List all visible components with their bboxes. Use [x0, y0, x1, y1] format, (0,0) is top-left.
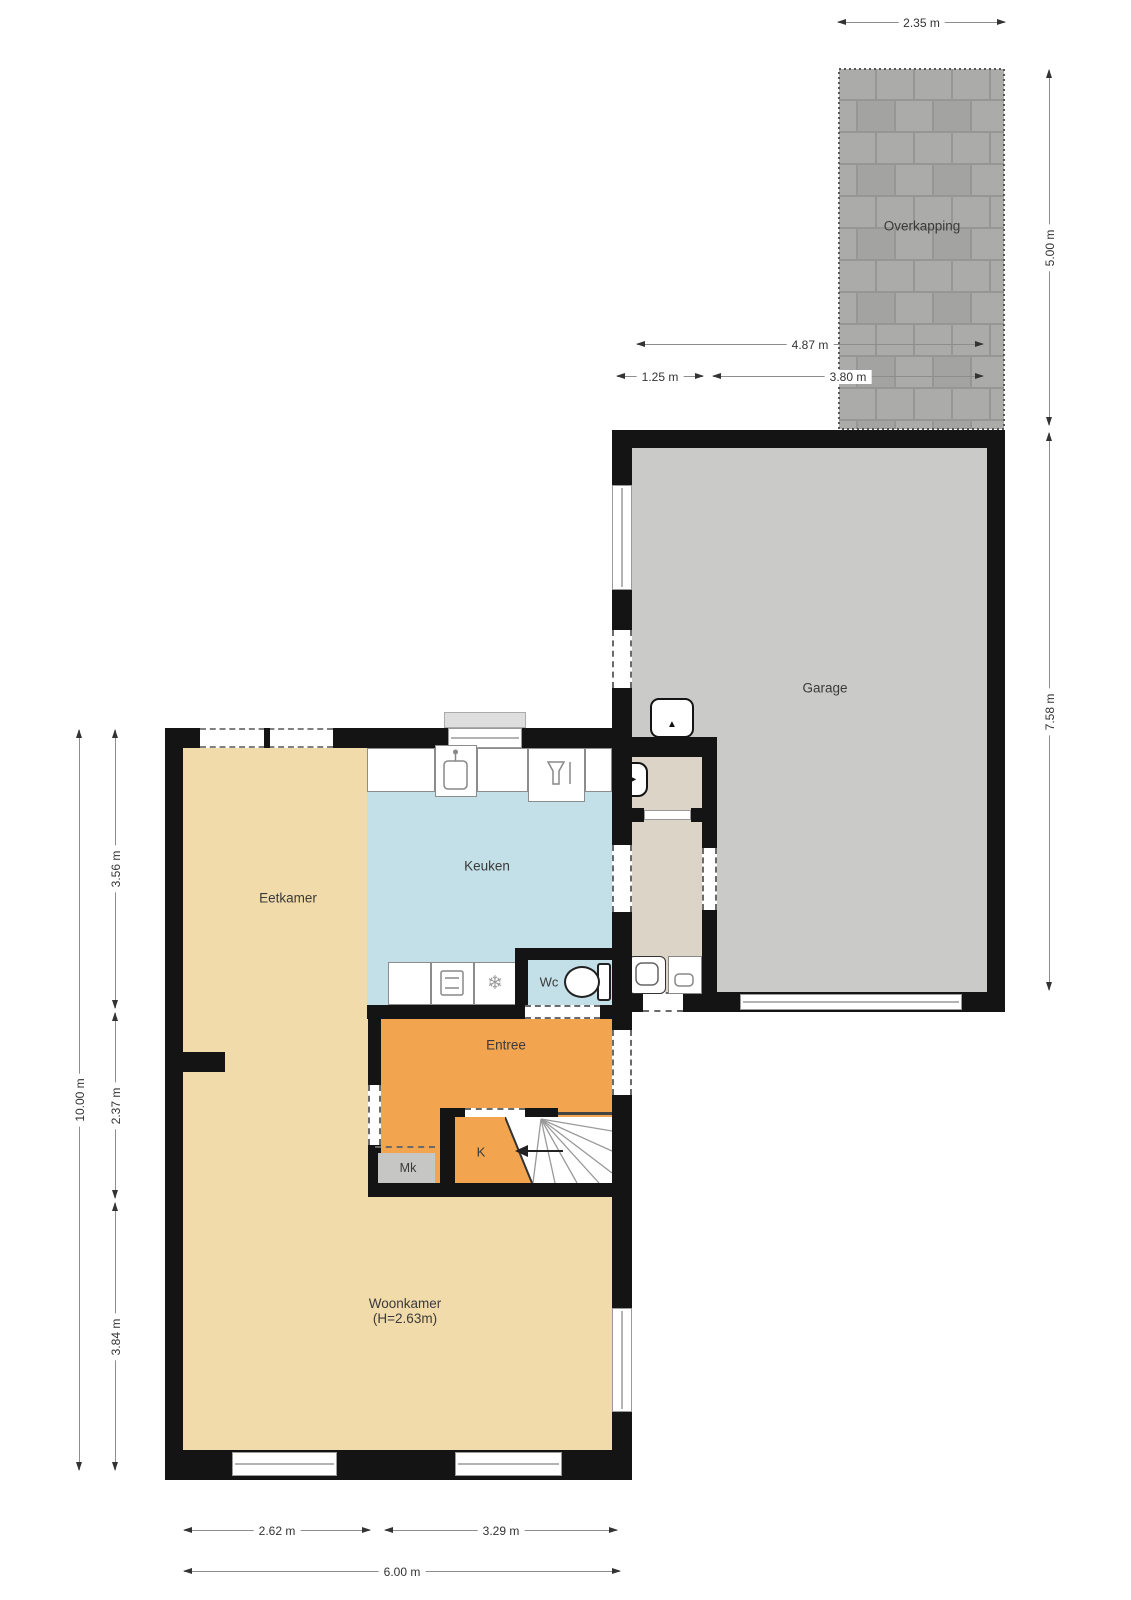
garage-hall-door-icon: ▲ — [650, 698, 694, 738]
staircase — [505, 1117, 612, 1183]
garage-side-opening — [612, 630, 632, 688]
stair-edge-line — [558, 1112, 612, 1115]
kitchen-counter — [585, 748, 612, 792]
room-label-overkapping: Overkapping — [884, 219, 961, 234]
snowflake-glyph: ❄ — [487, 972, 503, 995]
oven-icon — [431, 962, 474, 1005]
room-label-eetkamer: Eetkamer — [259, 891, 317, 906]
dishwasher-icon — [528, 748, 585, 802]
hall-garage-opening — [702, 848, 717, 910]
dim-label: 2.62 m — [254, 1524, 301, 1538]
garage-window — [612, 485, 632, 590]
hall-divider-opening — [644, 810, 691, 820]
dim-label: 1.25 m — [637, 370, 684, 384]
kitchen-window-sill — [444, 712, 526, 728]
woonkamer-ceiling-height: (H=2.63m) — [369, 1311, 442, 1326]
dim-label: 7.58 m — [1043, 688, 1057, 735]
wall-house-west — [165, 728, 183, 1480]
wall-wc-west — [515, 948, 528, 1005]
door-swing-up-icon: ▲ — [667, 720, 677, 730]
entree-woonkamer-opening — [368, 1085, 381, 1145]
dim-label: 3.29 m — [478, 1524, 525, 1538]
washing-machine-icon — [628, 956, 666, 994]
kitchen-counter — [367, 748, 435, 792]
meterkast-front — [375, 1146, 435, 1148]
dim-label: 10.00 m — [73, 1073, 87, 1126]
kitchen-counter — [477, 748, 528, 792]
woonkamer-name: Woonkamer — [369, 1296, 442, 1311]
utility-sink-icon — [668, 956, 702, 994]
room-label-meterkast: Mk — [400, 1161, 417, 1175]
toilet-icon — [564, 966, 600, 998]
floorplan: Overkapping Garage ▲ ▶ — [0, 0, 1131, 1600]
dim-label: 2.37 m — [109, 1082, 123, 1129]
hall-divider-stub — [632, 808, 644, 822]
wc-door — [525, 1005, 600, 1019]
kitchen-sink-icon — [435, 745, 477, 797]
wall-stub-eetkamer — [183, 1052, 225, 1072]
woonkamer-window-right — [455, 1452, 562, 1476]
dim-label: 3.56 m — [109, 846, 123, 893]
hall-divider-stub — [691, 808, 702, 822]
wall-entree-south — [368, 1183, 632, 1197]
kitchen-counter — [388, 962, 431, 1005]
wall-garage-east — [987, 430, 1005, 1012]
wall-kast-west — [440, 1108, 455, 1197]
front-door — [612, 1030, 632, 1095]
room-label-keuken: Keuken — [464, 859, 510, 874]
garage-door — [740, 994, 962, 1010]
kitchen-hall-door — [612, 845, 632, 912]
room-label-entree: Entree — [486, 1038, 526, 1053]
wall-garage-north — [615, 430, 1005, 448]
room-label-garage: Garage — [802, 681, 847, 696]
dim-label: 3.80 m — [825, 370, 872, 384]
dim-label: 4.87 m — [787, 338, 834, 352]
dim-label: 3.84 m — [109, 1313, 123, 1360]
woonkamer-window-left — [232, 1452, 337, 1476]
dim-label: 2.35 m — [898, 16, 945, 30]
room-label-wc: Wc — [540, 975, 559, 990]
dim-label: 6.00 m — [379, 1565, 426, 1579]
wall-wc-north — [515, 948, 615, 960]
woonkamer-side-window — [612, 1308, 632, 1412]
dim-label: 5.00 m — [1043, 224, 1057, 271]
freezer-icon: ❄ — [474, 962, 516, 1005]
window-mullion — [264, 728, 270, 748]
room-label-kast: K — [477, 1145, 486, 1160]
wall-garage-west — [612, 430, 632, 755]
room-label-woonkamer: Woonkamer (H=2.63m) — [369, 1296, 442, 1326]
